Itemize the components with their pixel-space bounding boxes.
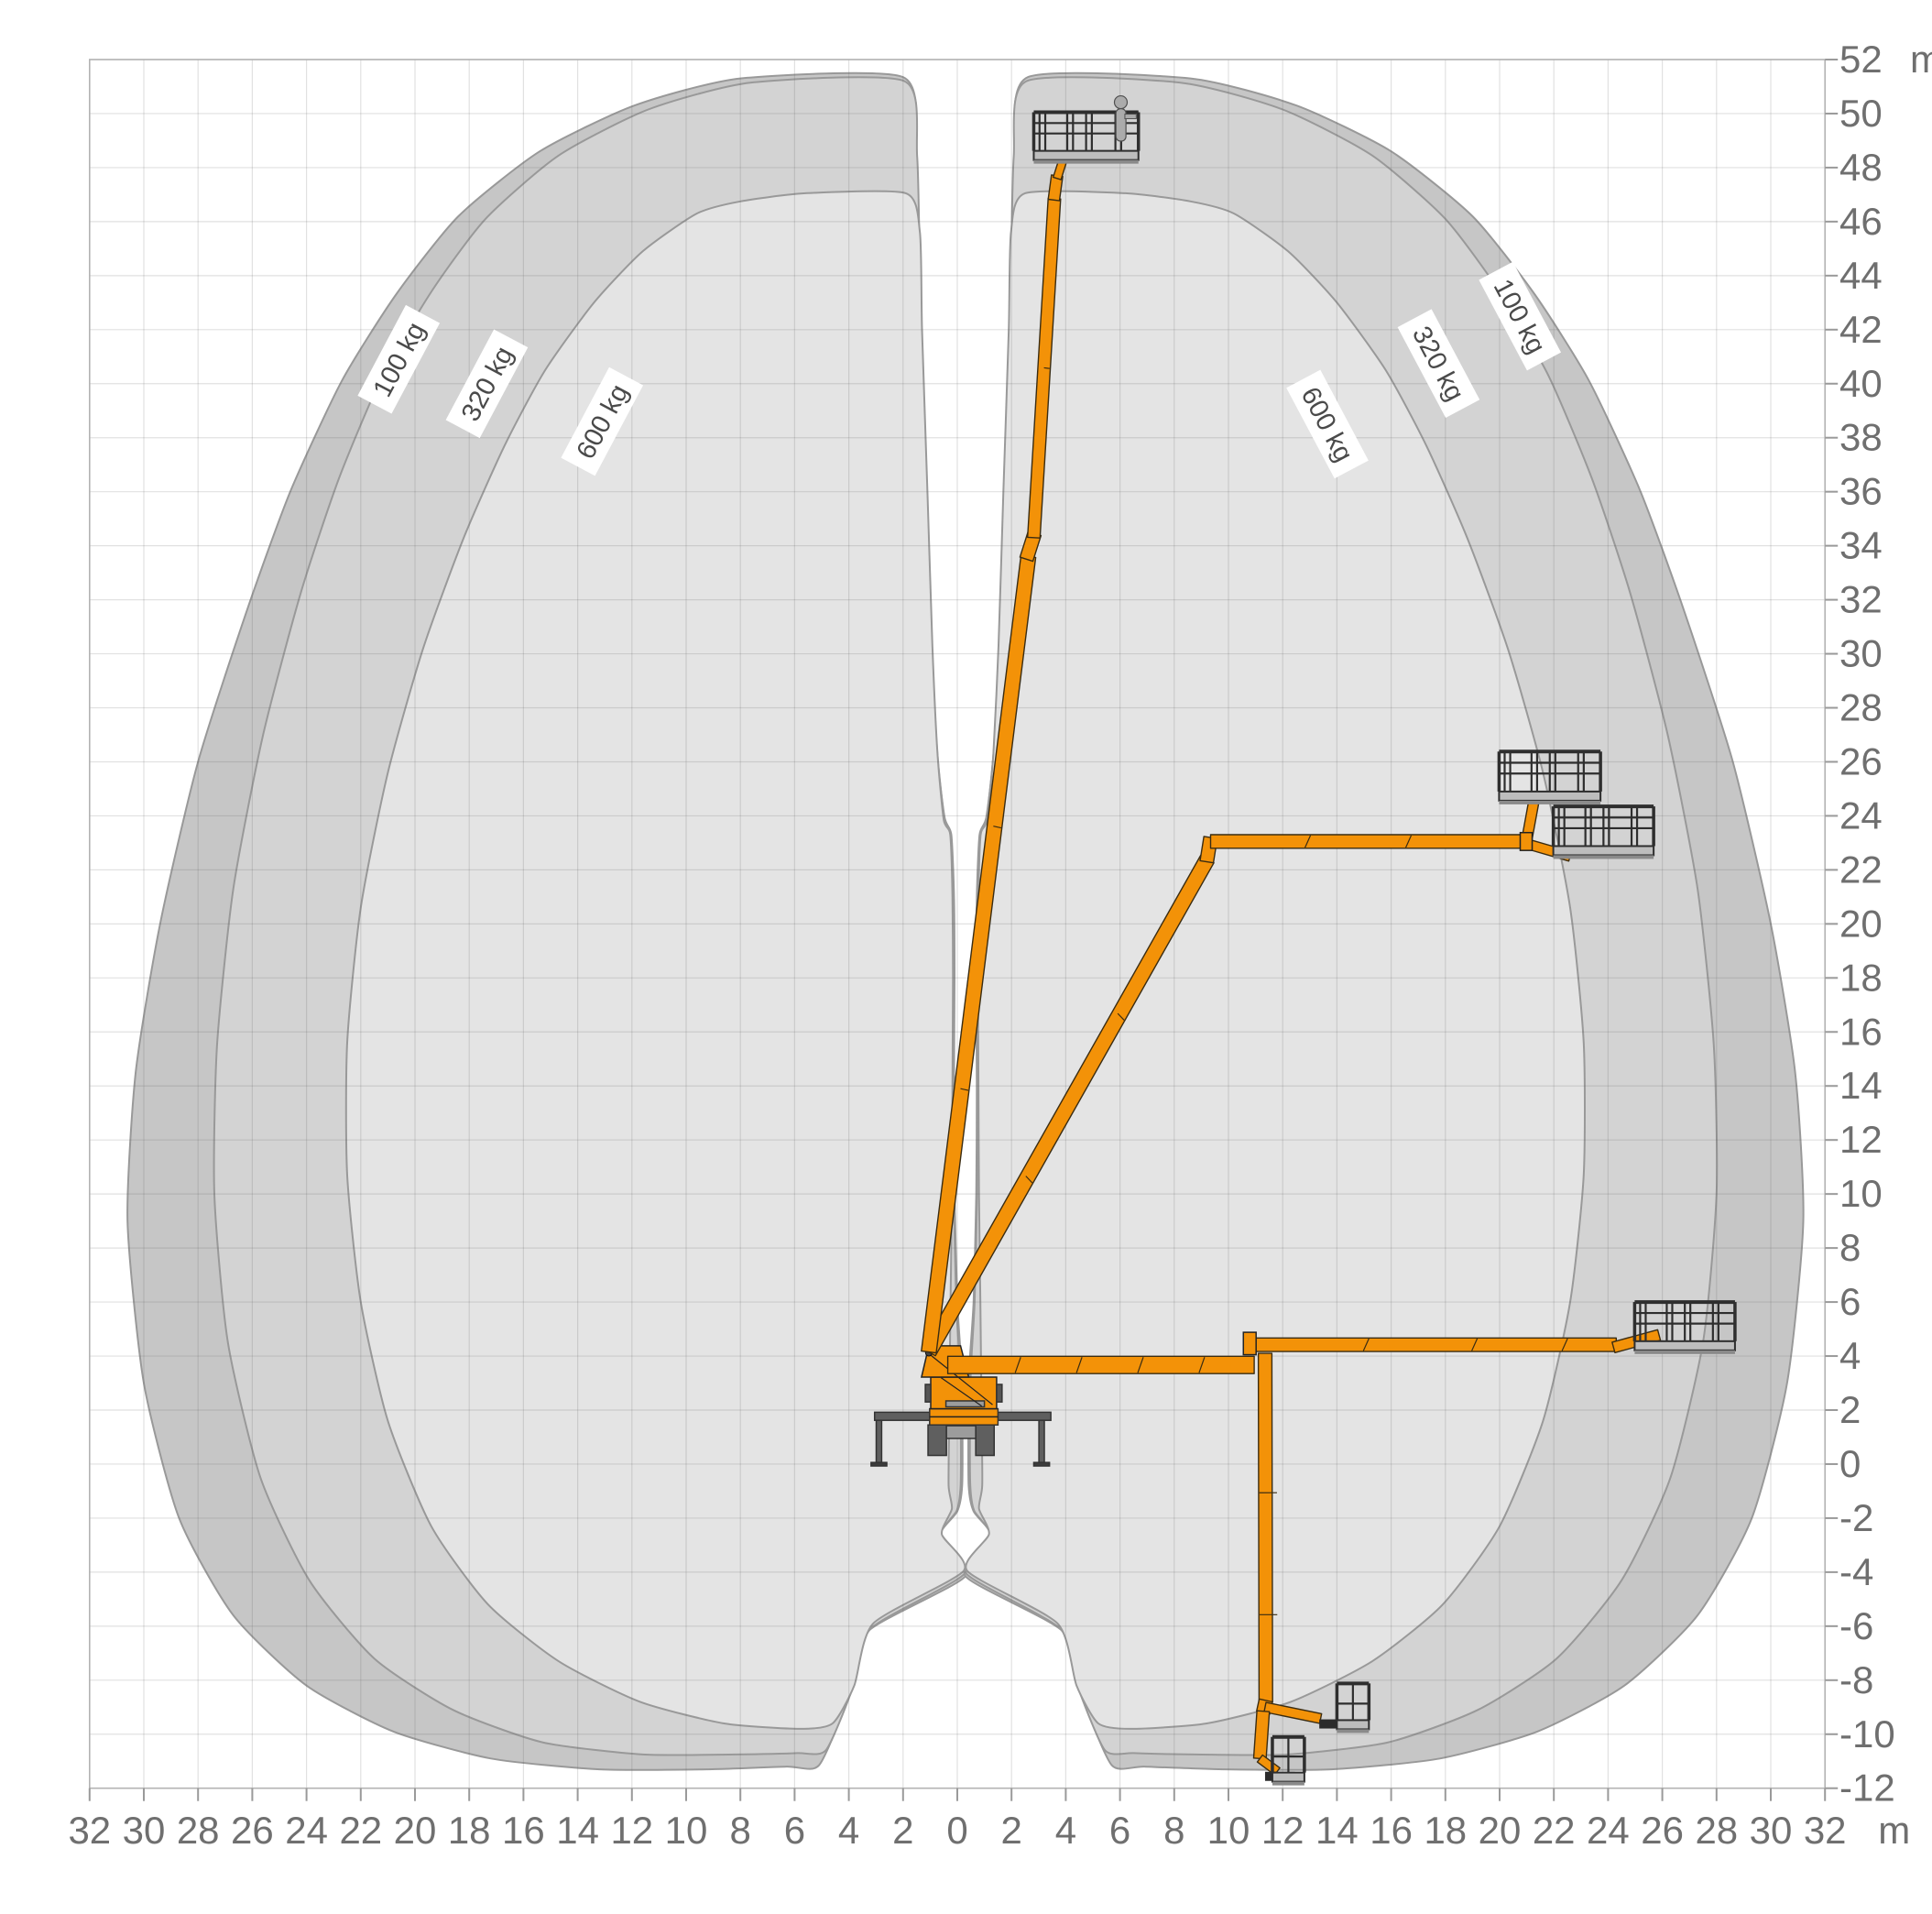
y-tick-label: 44 [1839, 254, 1883, 297]
x-tick-label: 26 [231, 1809, 274, 1852]
working-envelope-diagram: 3230282624222018161412108642024681012141… [0, 0, 1932, 1914]
y-tick-label: 12 [1839, 1118, 1883, 1161]
y-tick-label: 32 [1839, 578, 1883, 621]
y-tick-label: 20 [1839, 902, 1883, 945]
x-tick-label: 12 [1261, 1809, 1304, 1852]
y-tick-label: 4 [1839, 1334, 1861, 1377]
x-tick-label: 2 [892, 1809, 913, 1852]
x-tick-label: 8 [1163, 1809, 1184, 1852]
y-tick-label: 42 [1839, 308, 1883, 351]
x-tick-label: 20 [394, 1809, 437, 1852]
x-tick-label: 10 [1207, 1809, 1250, 1852]
y-tick-label: -4 [1839, 1550, 1873, 1593]
x-tick-label: 30 [1750, 1809, 1793, 1852]
y-tick-label: 14 [1839, 1064, 1883, 1107]
y-tick-label: -6 [1839, 1604, 1873, 1647]
y-tick-label: -8 [1839, 1658, 1873, 1701]
x-tick-label: 32 [68, 1809, 111, 1852]
y-tick-label: 52 [1839, 38, 1883, 81]
y-tick-label: 8 [1839, 1226, 1861, 1269]
x-tick-label: 30 [123, 1809, 166, 1852]
y-tick-label: -2 [1839, 1496, 1873, 1539]
x-tick-label: 28 [1695, 1809, 1738, 1852]
down-boom-upper [1259, 1353, 1273, 1701]
x-tick-label: 0 [946, 1809, 967, 1852]
x-tick-label: 28 [177, 1809, 220, 1852]
x-tick-label: 8 [730, 1809, 751, 1852]
y-tick-label: 16 [1839, 1010, 1883, 1053]
x-tick-label: 18 [448, 1809, 491, 1852]
x-tick-label: 6 [1109, 1809, 1130, 1852]
x-tick-label: 16 [1370, 1809, 1413, 1852]
envelope-chart-canvas: 3230282624222018161412108642024681012141… [0, 0, 1932, 1914]
lower-horizontal-boom [948, 1356, 1255, 1373]
x-tick-label: 2 [1001, 1809, 1022, 1852]
y-tick-label: 40 [1839, 362, 1883, 405]
y-tick-label: -12 [1839, 1766, 1895, 1810]
down-boom-lower [1254, 1711, 1270, 1759]
y-tick-label: 6 [1839, 1280, 1861, 1323]
y-tick-label: 36 [1839, 470, 1883, 513]
x-tick-label: 26 [1641, 1809, 1684, 1852]
x-tick-label: 22 [339, 1809, 382, 1852]
x-tick-label: 14 [1315, 1809, 1359, 1852]
y-tick-label: 24 [1839, 793, 1883, 837]
y-tick-label: 28 [1839, 686, 1883, 729]
y-axis-unit: m [1910, 38, 1932, 81]
x-tick-label: 12 [610, 1809, 653, 1852]
y-tick-label: 2 [1839, 1388, 1861, 1431]
x-tick-label: 24 [1587, 1809, 1630, 1852]
y-tick-label: 34 [1839, 524, 1883, 567]
y-tick-label: 10 [1839, 1172, 1883, 1215]
y-tick-label: 38 [1839, 416, 1883, 459]
y-tick-label: 0 [1839, 1442, 1861, 1485]
y-tick-label: 48 [1839, 146, 1883, 189]
x-tick-label: 4 [1055, 1809, 1076, 1852]
x-axis-unit: m [1878, 1809, 1910, 1852]
x-tick-label: 14 [556, 1809, 599, 1852]
y-tick-label: 18 [1839, 956, 1883, 999]
y-tick-label: 26 [1839, 739, 1883, 782]
upper-horizontal-boom [1211, 835, 1526, 848]
y-tick-label: 50 [1839, 92, 1883, 135]
y-tick-label: -10 [1839, 1712, 1895, 1755]
x-tick-label: 6 [784, 1809, 805, 1852]
x-tick-label: 24 [285, 1809, 328, 1852]
x-tick-label: 4 [838, 1809, 859, 1852]
x-tick-label: 10 [665, 1809, 708, 1852]
y-tick-label: 46 [1839, 200, 1883, 243]
x-tick-label: 18 [1424, 1809, 1467, 1852]
x-tick-label: 20 [1479, 1809, 1522, 1852]
y-tick-label: 30 [1839, 632, 1883, 675]
x-tick-label: 32 [1804, 1809, 1847, 1852]
x-tick-label: 22 [1533, 1809, 1576, 1852]
x-tick-label: 16 [502, 1809, 545, 1852]
y-tick-label: 22 [1839, 848, 1883, 891]
